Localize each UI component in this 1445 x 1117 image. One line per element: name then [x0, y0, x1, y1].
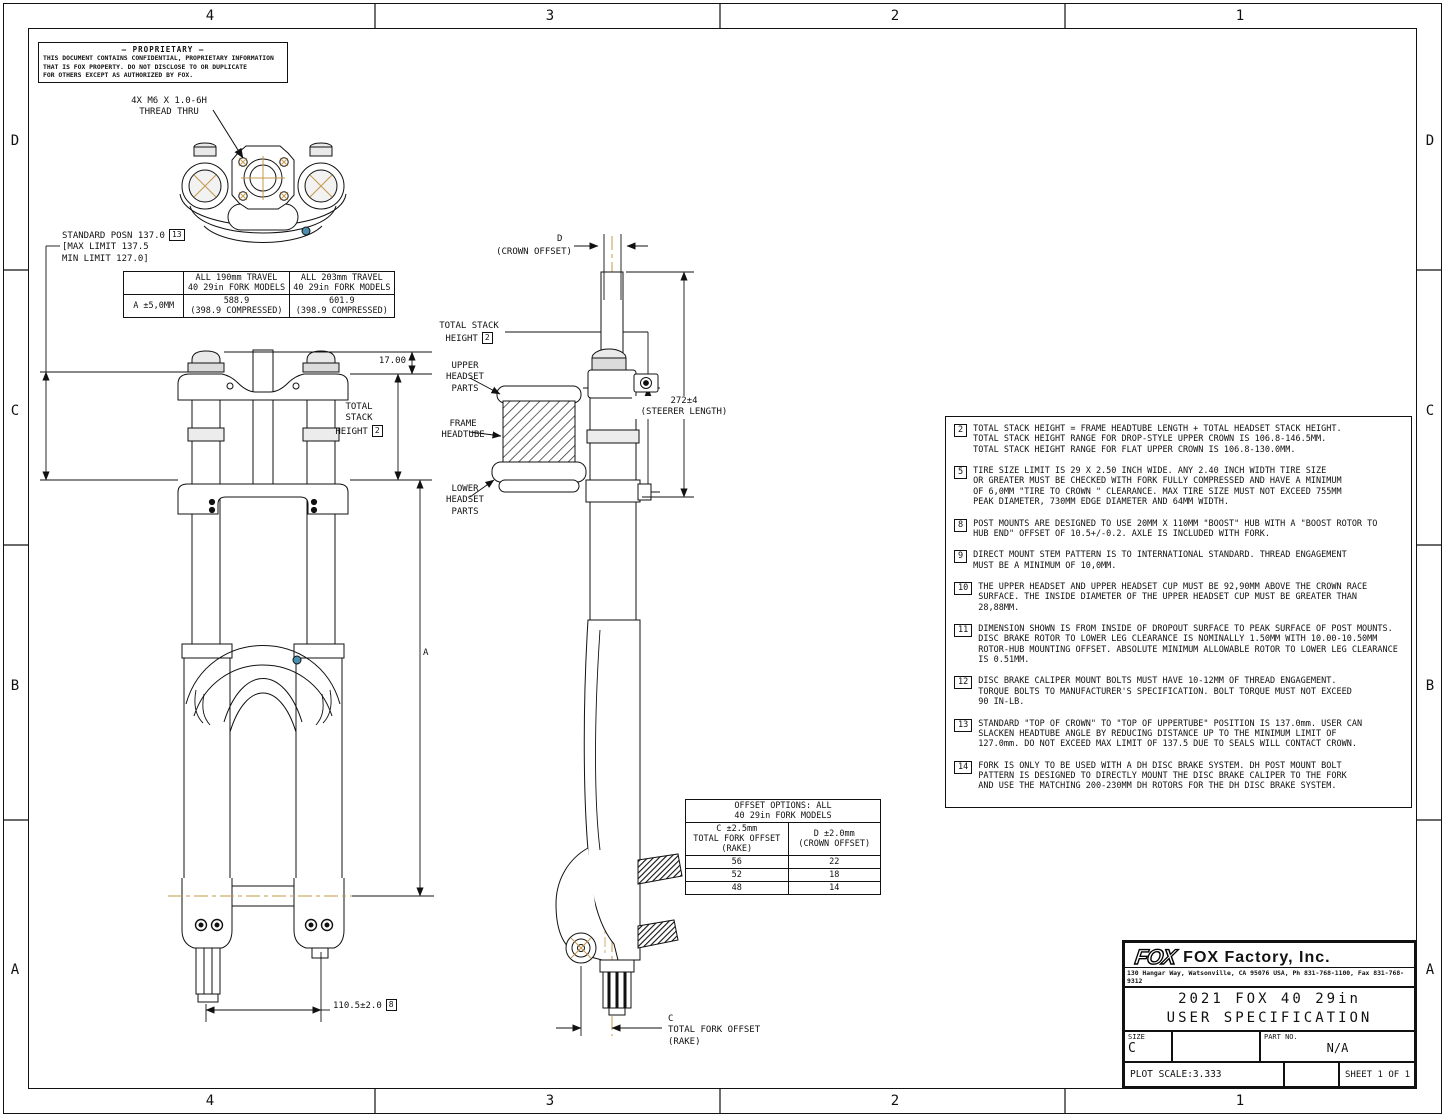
note-item-11: 11DIMENSION SHOWN IS FROM INSIDE OF DROP…: [954, 624, 1403, 665]
upper-headset-label: UPPER HEADSET PARTS: [438, 361, 492, 395]
travel-table-header-190: ALL 190mm TRAVEL 40 29in FORK MODELS: [184, 272, 289, 295]
offset-row-52: 5218: [686, 869, 881, 882]
post-mount-lower: [638, 920, 678, 948]
note-text: POST MOUNTS ARE DESIGNED TO USE 20MM X 1…: [973, 519, 1377, 540]
note-ref-box: 12: [954, 676, 972, 689]
note-item-13: 13STANDARD "TOP OF CROWN" TO "TOP OF UPP…: [954, 719, 1403, 750]
crown-top-view-drawing: [180, 110, 346, 243]
posn-limits-text: [MAX LIMIT 137.5 MIN LIMIT 127.0]: [62, 242, 185, 265]
size-cell: SIZE C: [1124, 1031, 1172, 1062]
note-text: STANDARD "TOP OF CROWN" TO "TOP OF UPPER…: [978, 719, 1362, 750]
note-item-9: 9DIRECT MOUNT STEM PATTERN IS TO INTERNA…: [954, 550, 1403, 571]
travel-table-header-203: ALL 203mm TRAVEL 40 29in FORK MODELS: [289, 272, 394, 295]
total-stack-front-label: TOTAL STACK HEIGHT2: [326, 402, 392, 438]
company-address: 130 Hangar Way, Watsonville, CA 95076 US…: [1125, 967, 1414, 986]
notes-panel: 2TOTAL STACK HEIGHT = FRAME HEADTUBE LEN…: [945, 416, 1412, 808]
thread-callout: 4X M6 X 1.0-6H THREAD THRU: [104, 96, 234, 119]
travel-table: ALL 190mm TRAVEL 40 29in FORK MODELS ALL…: [123, 271, 395, 318]
left-stanchion-cap-top: [182, 143, 228, 209]
rake-48: 48: [686, 882, 789, 895]
proprietary-notice: — PROPRIETARY — THIS DOCUMENT CONTAINS C…: [38, 42, 288, 83]
standard-posn-callout: STANDARD POSN 137.013 [MAX LIMIT 137.5 M…: [62, 229, 185, 265]
rake-56: 56: [686, 856, 789, 869]
note-item-5: 5TIRE SIZE LIMIT IS 29 X 2.50 INCH WIDE.…: [954, 466, 1403, 507]
note-ref-box: 10: [954, 582, 972, 595]
total-stack-words: TOTAL STACK: [326, 402, 392, 425]
proprietary-title: — PROPRIETARY —: [43, 45, 283, 54]
part-no-value: N/A: [1264, 1041, 1411, 1055]
drawing-title-cell: 2021 FOX 40 29in USER SPECIFICATION: [1124, 987, 1415, 1031]
plot-scale-cell: PLOT SCALE:3.333: [1124, 1062, 1284, 1087]
engineering-drawing-page: { "frame": { "zone_columns": ["4", "3", …: [0, 0, 1445, 1117]
part-no-label: PART NO.: [1264, 1033, 1411, 1041]
total-stack-detail-words: TOTAL STACK: [433, 321, 505, 332]
company-cell: FOX FOX Factory, Inc. 130 Hangar Way, Wa…: [1124, 942, 1415, 987]
note-text: THE UPPER HEADSET AND UPPER HEADSET CUP …: [978, 582, 1367, 613]
note-ref-13: 13: [169, 229, 185, 241]
note-ref-8: 8: [386, 999, 397, 1011]
crown-offset-letter: D: [557, 234, 569, 245]
crown-offset-label: (CROWN OFFSET): [490, 247, 578, 258]
note-ref-2: 2: [372, 425, 383, 437]
note-item-12: 12DISC BRAKE CALIPER MOUNT BOLTS MUST HA…: [954, 676, 1403, 707]
empty-cell-2: [1284, 1062, 1339, 1087]
fork-side-view-drawing: [556, 236, 682, 1036]
size-value: C: [1128, 1041, 1168, 1056]
note-ref-box: 2: [954, 424, 967, 437]
offset-col-rake-header: C ±2.5mm TOTAL FORK OFFSET (RAKE): [686, 823, 789, 856]
offset-row-56: 5622: [686, 856, 881, 869]
note-item-2: 2TOTAL STACK HEIGHT = FRAME HEADTUBE LEN…: [954, 424, 1403, 455]
note-ref-box: 5: [954, 466, 967, 479]
offset-row-48: 4814: [686, 882, 881, 895]
proprietary-body: THIS DOCUMENT CONTAINS CONFIDENTIAL, PRO…: [43, 54, 283, 80]
post-mount-upper: [638, 854, 682, 884]
total-stack-detail-height-word: HEIGHT: [445, 334, 478, 344]
travel-value-190: 588.9 (398.9 COMPRESSED): [184, 295, 289, 318]
offset-options-table: OFFSET OPTIONS: ALL 40 29in FORK MODELS …: [685, 799, 881, 895]
note-ref-box: 9: [954, 550, 967, 563]
note-ref-2b: 2: [482, 332, 493, 344]
offset-table-title: OFFSET OPTIONS: ALL 40 29in FORK MODELS: [686, 800, 881, 823]
size-label: SIZE: [1128, 1033, 1168, 1041]
title-block: FOX FOX Factory, Inc. 130 Hangar Way, Wa…: [1122, 940, 1417, 1089]
lower-headset-label: LOWER HEADSET PARTS: [436, 484, 494, 518]
note-text: FORK IS ONLY TO BE USED WITH A DH DISC B…: [978, 761, 1346, 792]
sheet-cell: SHEET 1 OF 1: [1339, 1062, 1415, 1087]
blue-pinch-bolt: [302, 227, 310, 235]
note-text: DIMENSION SHOWN IS FROM INSIDE OF DROPOU…: [978, 624, 1398, 665]
total-stack-detail-label: TOTAL STACK HEIGHT2: [433, 321, 505, 346]
crown-18: 18: [788, 869, 881, 882]
rake-52: 52: [686, 869, 789, 882]
note-item-14: 14FORK IS ONLY TO BE USED WITH A DH DISC…: [954, 761, 1403, 792]
total-stack-height-word: HEIGHT: [335, 427, 368, 437]
company-name: FOX Factory, Inc.: [1183, 949, 1330, 967]
arch-bleeder-valve: [293, 656, 301, 664]
crown-22: 22: [788, 856, 881, 869]
right-stanchion-cap-top: [298, 143, 344, 209]
fork-offset-label: C TOTAL FORK OFFSET (RAKE): [668, 1014, 760, 1048]
note-ref-box: 14: [954, 761, 972, 774]
note-text: TIRE SIZE LIMIT IS 29 X 2.50 INCH WIDE. …: [973, 466, 1341, 507]
part-no-cell: PART NO. N/A: [1260, 1031, 1415, 1062]
steerer-length-label: 272±4 (STEERER LENGTH): [632, 396, 736, 419]
note-ref-box: 11: [954, 624, 972, 637]
hub-width-dim-label: 110.5±2.08: [333, 999, 397, 1012]
dim-17-label: 17.00: [360, 356, 406, 367]
offset-col-crown-header: D ±2.0mm (CROWN OFFSET): [788, 823, 881, 856]
note-ref-box: 8: [954, 519, 967, 532]
note-ref-box: 13: [954, 719, 972, 732]
travel-table-row-label: A ±5,0MM: [124, 295, 184, 318]
note-item-10: 10THE UPPER HEADSET AND UPPER HEADSET CU…: [954, 582, 1403, 613]
frame-headtube-label: FRAME HEADTUBE: [434, 419, 492, 442]
standard-posn-text: STANDARD POSN 137.0: [62, 231, 165, 241]
note-text: TOTAL STACK HEIGHT = FRAME HEADTUBE LENG…: [973, 424, 1341, 455]
note-item-8: 8POST MOUNTS ARE DESIGNED TO USE 20MM X …: [954, 519, 1403, 540]
dim-a-label: A: [423, 648, 435, 659]
travel-value-203: 601.9 (398.9 COMPRESSED): [289, 295, 394, 318]
note-text: DISC BRAKE CALIPER MOUNT BOLTS MUST HAVE…: [978, 676, 1352, 707]
fork-front-view-drawing: [168, 350, 356, 1002]
travel-table-corner-cell: [124, 272, 184, 295]
hub-width-value: 110.5±2.0: [333, 1001, 382, 1011]
crown-14: 14: [788, 882, 881, 895]
note-text: DIRECT MOUNT STEM PATTERN IS TO INTERNAT…: [973, 550, 1347, 571]
drawing-title: 2021 FOX 40 29in USER SPECIFICATION: [1167, 990, 1373, 1028]
empty-cell-1: [1172, 1031, 1260, 1062]
